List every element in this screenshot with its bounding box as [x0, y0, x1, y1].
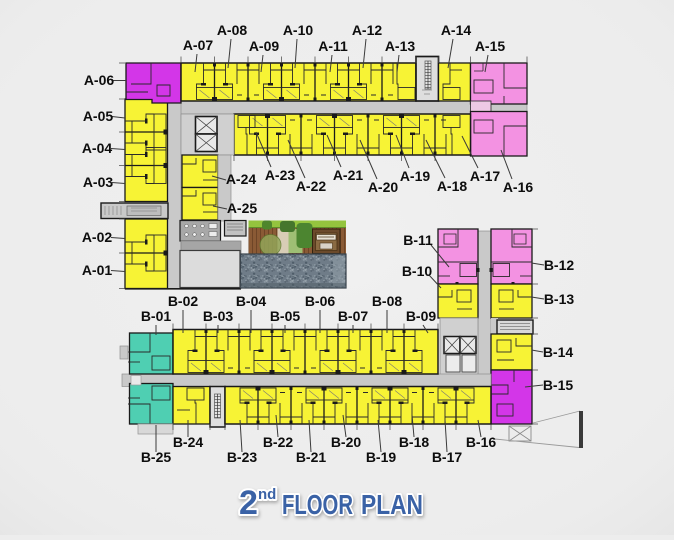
svg-text:B-13: B-13	[544, 291, 575, 307]
svg-text:B-14: B-14	[543, 344, 574, 360]
svg-text:B-25: B-25	[141, 449, 172, 465]
svg-text:B-22: B-22	[263, 434, 294, 450]
svg-text:A-24: A-24	[226, 171, 257, 187]
svg-text:A-07: A-07	[183, 37, 214, 53]
svg-text:B-17: B-17	[432, 449, 463, 465]
svg-text:B-01: B-01	[141, 308, 172, 324]
svg-text:B-18: B-18	[399, 434, 430, 450]
svg-text:A-15: A-15	[475, 38, 506, 54]
svg-text:A-09: A-09	[249, 38, 280, 54]
svg-text:B-09: B-09	[406, 308, 437, 324]
svg-text:nd: nd	[258, 486, 276, 503]
svg-text:B-08: B-08	[372, 293, 403, 309]
svg-text:B-23: B-23	[227, 449, 258, 465]
svg-text:A-01: A-01	[82, 262, 113, 278]
svg-text:A-06: A-06	[84, 72, 115, 88]
svg-text:A-10: A-10	[283, 22, 314, 38]
svg-text:A-16: A-16	[503, 179, 534, 195]
svg-text:B-19: B-19	[366, 449, 397, 465]
svg-text:B-02: B-02	[168, 293, 199, 309]
svg-text:B-07: B-07	[338, 308, 369, 324]
svg-text:PLAN: PLAN	[361, 489, 423, 520]
svg-text:B-05: B-05	[270, 308, 301, 324]
svg-text:B-04: B-04	[236, 293, 267, 309]
svg-text:B-03: B-03	[203, 308, 234, 324]
svg-text:B-12: B-12	[544, 257, 575, 273]
svg-text:A-03: A-03	[83, 174, 114, 190]
svg-text:A-05: A-05	[83, 108, 114, 124]
svg-text:2: 2	[239, 484, 258, 522]
svg-text:B-06: B-06	[305, 293, 336, 309]
svg-text:B-24: B-24	[173, 434, 204, 450]
svg-text:B-20: B-20	[331, 434, 362, 450]
svg-text:A-17: A-17	[470, 168, 501, 184]
svg-text:FLOOR: FLOOR	[282, 489, 353, 520]
svg-text:A-11: A-11	[318, 38, 348, 54]
svg-text:A-08: A-08	[217, 22, 248, 38]
svg-text:A-13: A-13	[385, 38, 416, 54]
svg-text:A-04: A-04	[82, 140, 113, 156]
svg-text:A-21: A-21	[333, 167, 364, 183]
svg-text:B-16: B-16	[466, 434, 497, 450]
svg-text:B-15: B-15	[543, 377, 574, 393]
svg-text:B-10: B-10	[402, 263, 433, 279]
svg-text:A-25: A-25	[227, 200, 258, 216]
svg-text:A-23: A-23	[265, 167, 296, 183]
svg-text:A-19: A-19	[400, 168, 431, 184]
svg-text:A-12: A-12	[352, 22, 383, 38]
svg-text:A-20: A-20	[368, 179, 399, 195]
svg-text:B-11: B-11	[403, 232, 433, 248]
svg-text:A-22: A-22	[296, 178, 327, 194]
svg-text:A-02: A-02	[82, 229, 113, 245]
svg-text:B-21: B-21	[296, 449, 327, 465]
svg-text:A-18: A-18	[437, 178, 468, 194]
svg-text:A-14: A-14	[441, 22, 472, 38]
